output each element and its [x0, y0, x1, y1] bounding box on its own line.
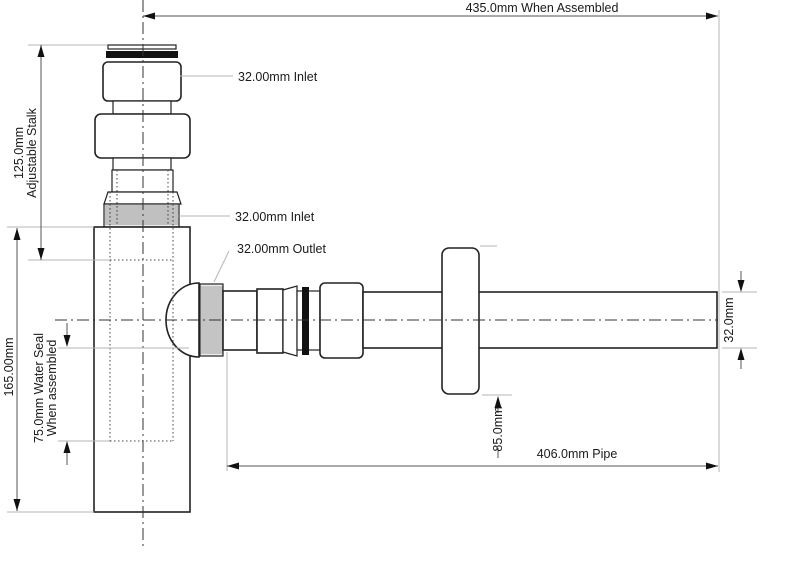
wall-flange — [442, 248, 479, 394]
inlet-nut-upper — [103, 62, 181, 101]
o-ring — [302, 287, 309, 355]
dim-label-water-seal-line1: 75.0mm Water Seal — [32, 333, 46, 443]
arrow-up — [38, 45, 45, 57]
inlet-neck-lower — [113, 158, 171, 170]
dim-label-pipe-diameter: 32.0mm — [722, 297, 736, 342]
inlet-neck-upper — [113, 101, 171, 114]
dim-label-stalk-line2: Adjustable Stalk — [25, 107, 39, 197]
dim-label-water-seal-line2: When assembled — [45, 340, 59, 437]
label-inlet-top: 32.00mm Inlet — [180, 70, 318, 84]
trap-body — [94, 227, 190, 512]
arrow-right — [706, 13, 718, 20]
compression-sleeve — [257, 289, 283, 353]
label-outlet: 32.00mm Outlet — [214, 242, 326, 282]
arrow-up — [14, 228, 21, 240]
arrow-up-tip — [64, 441, 71, 453]
arrow-down-tip — [738, 280, 745, 292]
dim-label-assembled: 435.0mm When Assembled — [466, 1, 619, 15]
dim-label-body-height: 165.00mm — [2, 337, 16, 396]
dim-label-pipe-length: 406.0mm Pipe — [537, 447, 618, 461]
inlet-washer — [108, 45, 176, 49]
arrow-up-tip — [738, 348, 745, 360]
dimension-flange-offset: 85.0mm — [480, 246, 512, 458]
arrow-left — [227, 463, 239, 470]
arrow-down — [14, 499, 21, 511]
dim-label-stalk-line1: 125.0mm — [12, 127, 26, 179]
arrow-left — [143, 13, 155, 20]
arrow-up-tip — [495, 396, 502, 408]
leader-line — [214, 251, 229, 282]
cone-washer — [283, 286, 297, 356]
arrow-down-tip — [64, 335, 71, 347]
dimension-assembled-width: 435.0mm When Assembled — [143, 1, 719, 472]
label-text: 32.00mm Outlet — [237, 242, 326, 256]
dim-label-flange-offset: 85.0mm — [491, 406, 505, 451]
arrow-down — [38, 248, 45, 260]
label-text: 32.00mm Inlet — [238, 70, 318, 84]
arrow-right — [706, 463, 718, 470]
dimension-pipe-diameter: 32.0mm — [722, 271, 757, 369]
trap-assembly — [94, 45, 717, 512]
label-text: 32.00mm Inlet — [235, 210, 315, 224]
label-inlet-mid: 32.00mm Inlet — [179, 210, 315, 224]
inlet-seal-ring — [106, 51, 178, 58]
technical-drawing: 435.0mm When Assembled 165.00mm 125.0mm … — [0, 0, 800, 579]
